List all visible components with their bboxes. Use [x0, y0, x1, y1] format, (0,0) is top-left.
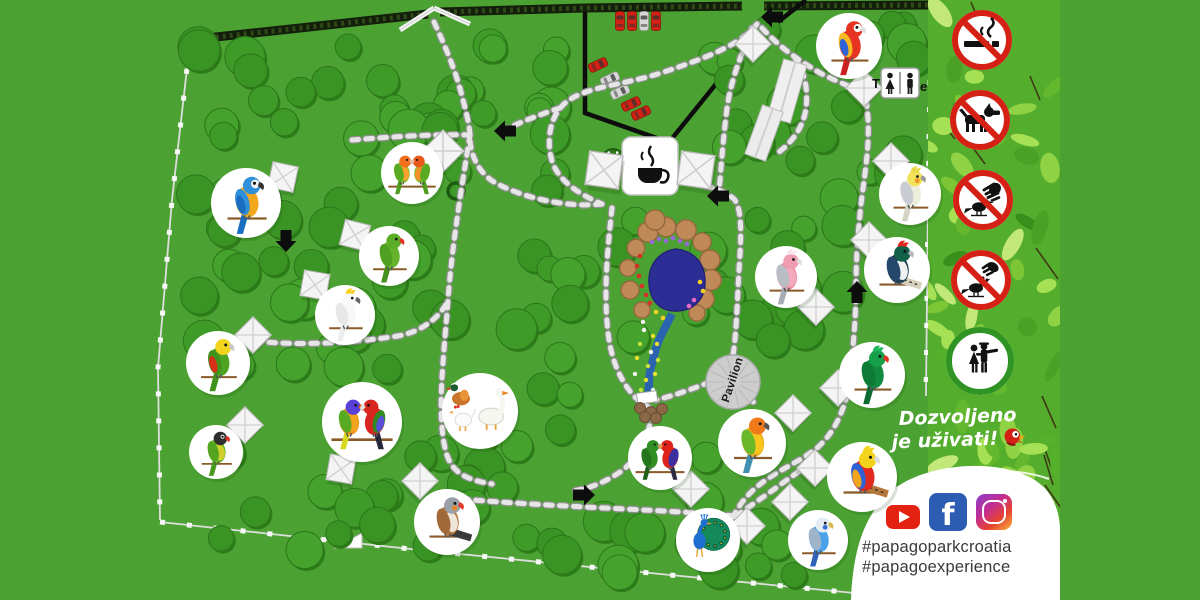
- hedge: [440, 6, 742, 12]
- shrub: [627, 239, 645, 257]
- wc-sign: [881, 68, 919, 98]
- shrub: [693, 233, 711, 251]
- enclosure-waterfowl-and-poultry[interactable]: [442, 373, 520, 452]
- toilets-word-fragment-left: T: [872, 76, 880, 91]
- flowers: [637, 274, 642, 279]
- flowers: [648, 301, 653, 306]
- sign-visitors-welcome: [946, 327, 1014, 395]
- shrub: [621, 281, 639, 299]
- flowers: [698, 280, 703, 285]
- flowers: [657, 237, 662, 242]
- aviary-icon: [676, 151, 717, 195]
- flowers: [635, 264, 640, 269]
- instagram-icon[interactable]: [976, 494, 1012, 530]
- flowers: [671, 236, 676, 241]
- parked-car: [640, 12, 649, 31]
- parked-car: [587, 57, 608, 73]
- enclosure-king-parrots[interactable]: [628, 426, 694, 493]
- enclosure-lady-amherst-pheasant[interactable]: [864, 237, 932, 306]
- hashtags: #papagoparkcroatia #papagoexperience: [862, 538, 1011, 577]
- flowers: [692, 298, 697, 303]
- papago-park-map-poster: Pavilion T e Dozvoljeno je uživati! f #p…: [0, 0, 1200, 600]
- toilets-word-fragment-right: e: [920, 79, 927, 94]
- enclosure-lorikeet-and-king-parrot[interactable]: [322, 382, 404, 465]
- flowers: [661, 316, 666, 321]
- flowers: [644, 293, 649, 298]
- flowers: [638, 254, 643, 259]
- hashtag-park: #papagoparkcroatia: [862, 538, 1011, 558]
- social-icons: f: [886, 493, 1012, 531]
- parrot-head-icon: [1001, 426, 1026, 451]
- cafe-sign: [622, 137, 678, 195]
- flowers: [654, 310, 659, 315]
- shrub: [620, 260, 637, 277]
- flowers: [678, 239, 683, 244]
- flowers: [640, 284, 645, 289]
- sign-no-dogs: [950, 90, 1010, 150]
- sign-no-smoking: [952, 10, 1012, 70]
- flowers: [687, 304, 692, 309]
- fence: [158, 42, 190, 520]
- flowers: [685, 242, 690, 247]
- hedge: [764, 5, 928, 6]
- parking-lot: [587, 12, 660, 122]
- sign-no-feeding-birds: [951, 250, 1011, 310]
- hashtag-experience: #papagoexperience: [862, 558, 1011, 578]
- youtube-icon[interactable]: [886, 505, 920, 529]
- stream: [647, 314, 672, 398]
- aviary-icon: [584, 151, 625, 195]
- facebook-icon[interactable]: f: [929, 493, 967, 531]
- pond: [649, 249, 705, 311]
- shrub: [676, 220, 696, 240]
- slogan: Dozvoljeno je uživati!: [879, 403, 1037, 454]
- parked-car: [628, 12, 637, 31]
- shrub: [634, 302, 650, 318]
- parked-car: [616, 12, 625, 31]
- parked-car: [652, 12, 661, 31]
- sign-no-catching-birds: [953, 170, 1013, 230]
- flowers: [664, 239, 669, 244]
- park-map: [0, 0, 1200, 600]
- shrub: [645, 210, 665, 230]
- flowers: [650, 240, 655, 245]
- flowers: [701, 289, 706, 294]
